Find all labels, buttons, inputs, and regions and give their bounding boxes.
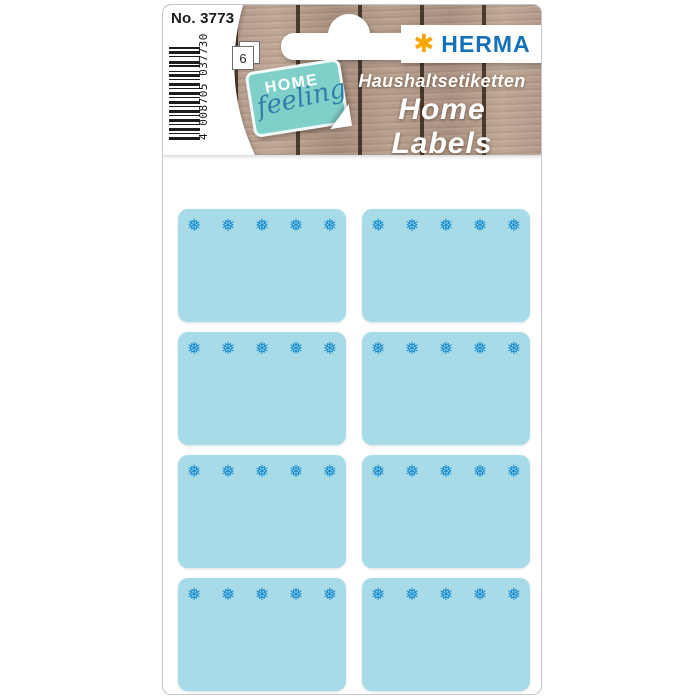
page-background: No. 3773 4 008705 037730 6 HOME feeling … xyxy=(0,0,700,700)
snowflake-icon: ❅ xyxy=(289,217,303,234)
snowflake-row: ❅❅❅❅❅ xyxy=(178,578,346,603)
snowflake-icon: ❅ xyxy=(473,340,487,357)
sticker-label: ❅❅❅❅❅ xyxy=(362,578,530,691)
snowflake-row: ❅❅❅❅❅ xyxy=(362,209,530,234)
snowflake-icon: ❅ xyxy=(371,217,385,234)
sticker-label: ❅❅❅❅❅ xyxy=(178,209,346,322)
snowflake-icon: ❅ xyxy=(371,586,385,603)
herma-logo: ✱ HERMA xyxy=(401,25,541,63)
product-number: No. 3773 xyxy=(171,10,234,27)
snowflake-icon: ❅ xyxy=(405,463,419,480)
title-german: Haushaltsetiketten xyxy=(346,71,538,92)
snowflake-icon: ❅ xyxy=(323,463,337,480)
snowflake-icon: ❅ xyxy=(221,217,235,234)
product-titles: Haushaltsetiketten Home Labels Étiquette… xyxy=(346,71,538,155)
barcode-icon xyxy=(169,47,200,140)
sticker-label: ❅❅❅❅❅ xyxy=(362,455,530,568)
sticker-label: ❅❅❅❅❅ xyxy=(362,209,530,322)
barcode-digits: 4 008705 037730 xyxy=(197,47,211,140)
snowflake-icon: ❅ xyxy=(323,586,337,603)
snowflake-icon: ❅ xyxy=(405,340,419,357)
snowflake-icon: ❅ xyxy=(255,217,269,234)
snowflake-row: ❅❅❅❅❅ xyxy=(178,332,346,357)
snowflake-icon: ❅ xyxy=(221,340,235,357)
snowflake-icon: ❅ xyxy=(371,340,385,357)
snowflake-icon: ❅ xyxy=(289,340,303,357)
snowflake-icon: ❅ xyxy=(221,463,235,480)
snowflake-icon: ❅ xyxy=(439,340,453,357)
snowflake-icon: ❅ xyxy=(473,217,487,234)
snowflake-icon: ❅ xyxy=(405,217,419,234)
snowflake-row: ❅❅❅❅❅ xyxy=(362,332,530,357)
snowflake-row: ❅❅❅❅❅ xyxy=(178,209,346,234)
snowflake-icon: ❅ xyxy=(371,463,385,480)
snowflake-icon: ❅ xyxy=(507,463,521,480)
sticker-label: ❅❅❅❅❅ xyxy=(178,332,346,445)
snowflake-row: ❅❅❅❅❅ xyxy=(178,455,346,480)
snowflake-icon: ❅ xyxy=(289,586,303,603)
snowflake-icon: ❅ xyxy=(255,340,269,357)
herma-wordmark: HERMA xyxy=(441,31,530,58)
product-card: No. 3773 4 008705 037730 6 HOME feeling … xyxy=(162,4,542,695)
sticker-label: ❅❅❅❅❅ xyxy=(362,332,530,445)
snowflake-icon: ❅ xyxy=(255,586,269,603)
snowflake-icon: ❅ xyxy=(187,340,201,357)
snowflake-row: ❅❅❅❅❅ xyxy=(362,455,530,480)
snowflake-icon: ❅ xyxy=(507,586,521,603)
title-english: Home Labels xyxy=(346,93,538,155)
snowflake-icon: ❅ xyxy=(187,463,201,480)
sheet-count-badge: 6 xyxy=(232,46,254,70)
snowflake-icon: ❅ xyxy=(439,217,453,234)
home-feeling-tag: HOME feeling xyxy=(244,58,349,138)
sticker-label: ❅❅❅❅❅ xyxy=(178,455,346,568)
snowflake-icon: ❅ xyxy=(187,217,201,234)
sticker-grid: ❅❅❅❅❅❅❅❅❅❅❅❅❅❅❅❅❅❅❅❅❅❅❅❅❅❅❅❅❅❅❅❅❅❅❅❅❅❅❅❅ xyxy=(178,209,530,691)
snowflake-row: ❅❅❅❅❅ xyxy=(362,578,530,603)
snowflake-icon: ❅ xyxy=(255,463,269,480)
snowflake-icon: ❅ xyxy=(439,463,453,480)
snowflake-icon: ❅ xyxy=(507,340,521,357)
snowflake-icon: ❅ xyxy=(473,586,487,603)
snowflake-icon: ❅ xyxy=(289,463,303,480)
snowflake-icon: ❅ xyxy=(323,217,337,234)
snowflake-icon: ❅ xyxy=(405,586,419,603)
snowflake-icon: ❅ xyxy=(473,463,487,480)
snowflake-icon: ❅ xyxy=(187,586,201,603)
snowflake-icon: ❅ xyxy=(323,340,337,357)
sheet-count-value: 6 xyxy=(239,51,246,66)
packaging-header: No. 3773 4 008705 037730 6 HOME feeling … xyxy=(163,5,541,155)
herma-star-icon: ✱ xyxy=(413,32,434,57)
snowflake-icon: ❅ xyxy=(221,586,235,603)
snowflake-icon: ❅ xyxy=(507,217,521,234)
snowflake-icon: ❅ xyxy=(439,586,453,603)
sticker-label: ❅❅❅❅❅ xyxy=(178,578,346,691)
